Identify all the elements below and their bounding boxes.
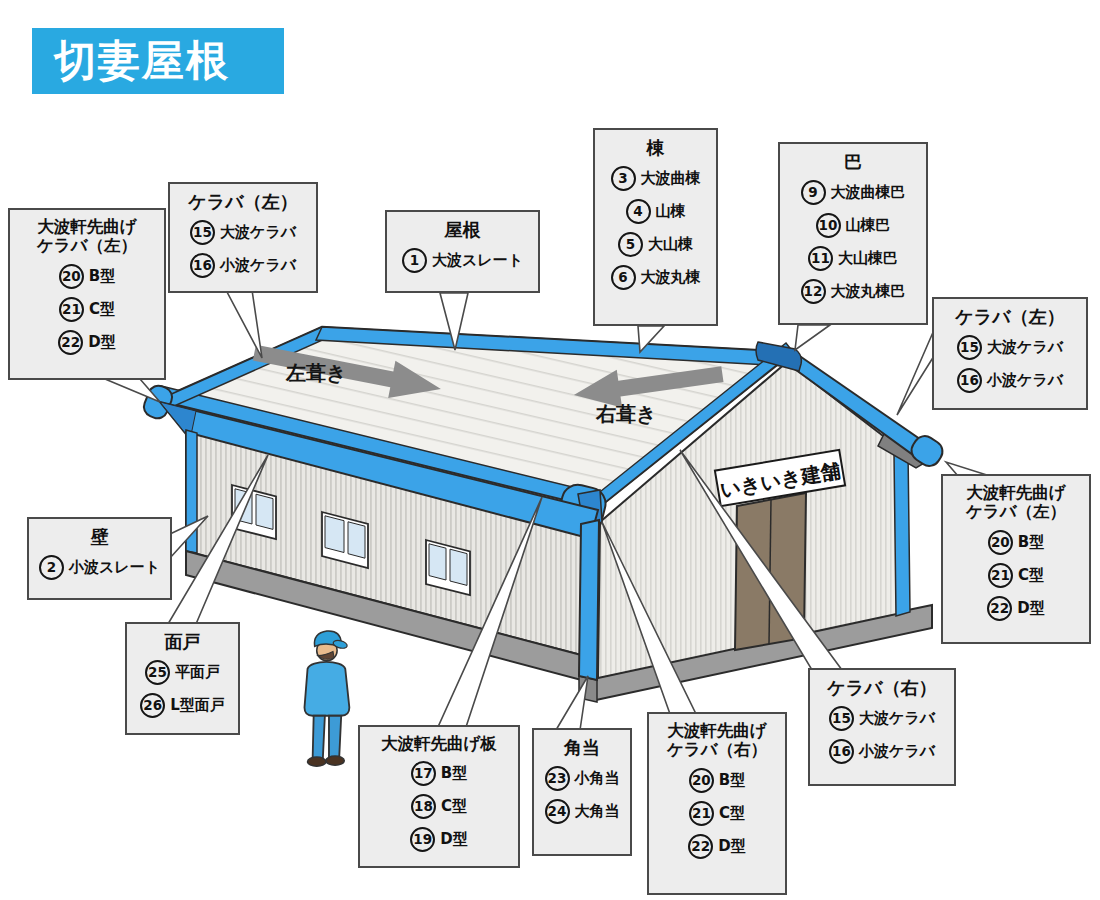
- item-label: D型: [718, 839, 745, 854]
- callout-mendo: 面戸 25平面戸 26L型面戸: [125, 622, 240, 735]
- item-label: 小波スレート: [69, 560, 160, 575]
- item-label: 大角当: [575, 804, 620, 819]
- item-label: 小波ケラバ: [987, 373, 1063, 388]
- callout-ridge: 棟 3大波曲棟 4山棟 5大山棟 6大波丸棟: [593, 128, 718, 326]
- callout-title: 壁: [33, 526, 166, 547]
- item-number: 15: [190, 220, 215, 245]
- item-label: B型: [89, 269, 115, 284]
- callout-title: ケラバ（左）: [14, 236, 160, 255]
- callout-title: 棟: [599, 137, 712, 158]
- leader-line: [226, 290, 262, 358]
- callout-title: 大波軒先曲げ: [947, 483, 1085, 502]
- item-label: C型: [719, 806, 745, 821]
- item-number: 18: [411, 794, 436, 819]
- callout-title: 大波軒先曲げ: [14, 217, 160, 236]
- item-label: 大波曲棟巴: [831, 185, 906, 200]
- callout-keraba-left-right-side: ケラバ（左） 15大波ケラバ 16小波ケラバ: [932, 297, 1088, 410]
- callout-title: ケラバ（左）: [947, 502, 1085, 521]
- item-label: 大波丸棟: [641, 270, 701, 285]
- item-number: 12: [801, 279, 826, 304]
- item-number: 4: [626, 199, 651, 224]
- item-label: 山棟巴: [846, 218, 891, 233]
- leader-line: [795, 325, 830, 350]
- callout-kadoate: 角当 23小角当 24大角当: [532, 728, 632, 856]
- item-label: 平面戸: [175, 665, 220, 680]
- item-label: 大波スレート: [432, 253, 523, 268]
- item-label: B型: [441, 766, 467, 781]
- item-label: 大波ケラバ: [987, 340, 1063, 355]
- item-label: 大山棟巴: [838, 251, 898, 266]
- item-number: 21: [59, 297, 84, 322]
- callout-wall: 壁 2小波スレート: [27, 517, 172, 600]
- item-label: B型: [719, 773, 745, 788]
- callout-eaves-bend-keraba-left-right-side: 大波軒先曲げケラバ（左） 20B型 21C型 22D型: [941, 474, 1091, 644]
- diagram-canvas: いきいき建舗: [0, 0, 1100, 900]
- item-label: 大波ケラバ: [859, 711, 935, 726]
- item-number: 22: [688, 834, 713, 859]
- callout-title: 巴: [784, 151, 922, 172]
- item-number: 22: [987, 596, 1012, 621]
- item-number: 1: [402, 248, 427, 273]
- worker-figure: [304, 631, 349, 766]
- item-number: 23: [545, 766, 570, 791]
- item-number: 15: [957, 335, 982, 360]
- item-label: D型: [88, 335, 115, 350]
- item-label: C型: [89, 302, 115, 317]
- callout-eaves-bend-plate: 大波軒先曲げ板 17B型 18C型 19D型: [358, 725, 520, 868]
- item-label: 小波ケラバ: [220, 258, 296, 273]
- item-number: 16: [190, 253, 215, 278]
- item-label: 大波曲棟: [641, 171, 701, 186]
- item-number: 10: [816, 213, 841, 238]
- item-number: 6: [611, 265, 636, 290]
- callout-keraba-right: ケラバ（右） 15大波ケラバ 16小波ケラバ: [808, 668, 956, 786]
- item-label: C型: [1018, 568, 1044, 583]
- callout-tomoe: 巴 9大波曲棟巴 10山棟巴 11大山棟巴 12大波丸棟巴: [778, 142, 928, 325]
- item-label: C型: [441, 799, 467, 814]
- callout-title: 大波軒先曲げ: [653, 721, 781, 740]
- item-number: 16: [829, 739, 854, 764]
- item-number: 21: [988, 563, 1013, 588]
- item-label: L型面戸: [170, 698, 225, 713]
- item-number: 17: [411, 761, 436, 786]
- item-number: 16: [957, 368, 982, 393]
- item-number: 3: [611, 166, 636, 191]
- leader-line: [897, 330, 934, 415]
- callout-title: 面戸: [131, 631, 234, 652]
- leader-line: [556, 676, 588, 730]
- roof-label-right: 右葺き: [595, 402, 656, 426]
- callout-keraba-left-upper: ケラバ（左） 15大波ケラバ 16小波ケラバ: [168, 182, 318, 293]
- item-number: 9: [801, 180, 826, 205]
- callout-title: ケラバ（左）: [938, 306, 1082, 327]
- item-number: 15: [829, 706, 854, 731]
- callout-title: 屋根: [391, 219, 534, 240]
- item-number: 24: [545, 799, 570, 824]
- corner-post-trim: [579, 520, 599, 680]
- item-number: 2: [39, 555, 64, 580]
- callout-title: ケラバ（左）: [174, 191, 312, 212]
- item-label: 小波ケラバ: [859, 744, 935, 759]
- item-label: 山棟: [656, 204, 686, 219]
- item-label: 大波ケラバ: [220, 225, 296, 240]
- item-label: D型: [1017, 601, 1044, 616]
- item-number: 20: [988, 530, 1013, 555]
- item-number: 20: [689, 768, 714, 793]
- callout-title: 角当: [538, 737, 626, 758]
- item-label: 大山棟: [648, 237, 693, 252]
- item-number: 26: [140, 693, 165, 718]
- gable-corner-trim: [894, 450, 910, 616]
- item-number: 19: [410, 827, 435, 852]
- item-number: 11: [808, 246, 833, 271]
- callout-eaves-bend-keraba-right: 大波軒先曲げケラバ（右） 20B型 21C型 22D型: [647, 712, 787, 895]
- callout-title: ケラバ（右）: [814, 677, 950, 698]
- item-number: 21: [689, 801, 714, 826]
- callout-title: ケラバ（右）: [653, 740, 781, 759]
- callout-roof: 屋根 1大波スレート: [385, 210, 540, 293]
- item-number: 25: [145, 660, 170, 685]
- item-label: B型: [1018, 535, 1044, 550]
- callout-title: 大波軒先曲げ板: [364, 734, 514, 753]
- item-number: 22: [58, 330, 83, 355]
- page-title: 切妻屋根: [32, 28, 284, 94]
- item-label: D型: [440, 832, 467, 847]
- item-number: 20: [59, 264, 84, 289]
- callout-eaves-bend-keraba-left-upper: 大波軒先曲げケラバ（左） 20B型 21C型 22D型: [8, 208, 166, 380]
- roof-label-left: 左葺き: [285, 361, 346, 385]
- item-label: 大波丸棟巴: [831, 284, 906, 299]
- item-label: 小角当: [575, 771, 620, 786]
- item-number: 5: [618, 232, 643, 257]
